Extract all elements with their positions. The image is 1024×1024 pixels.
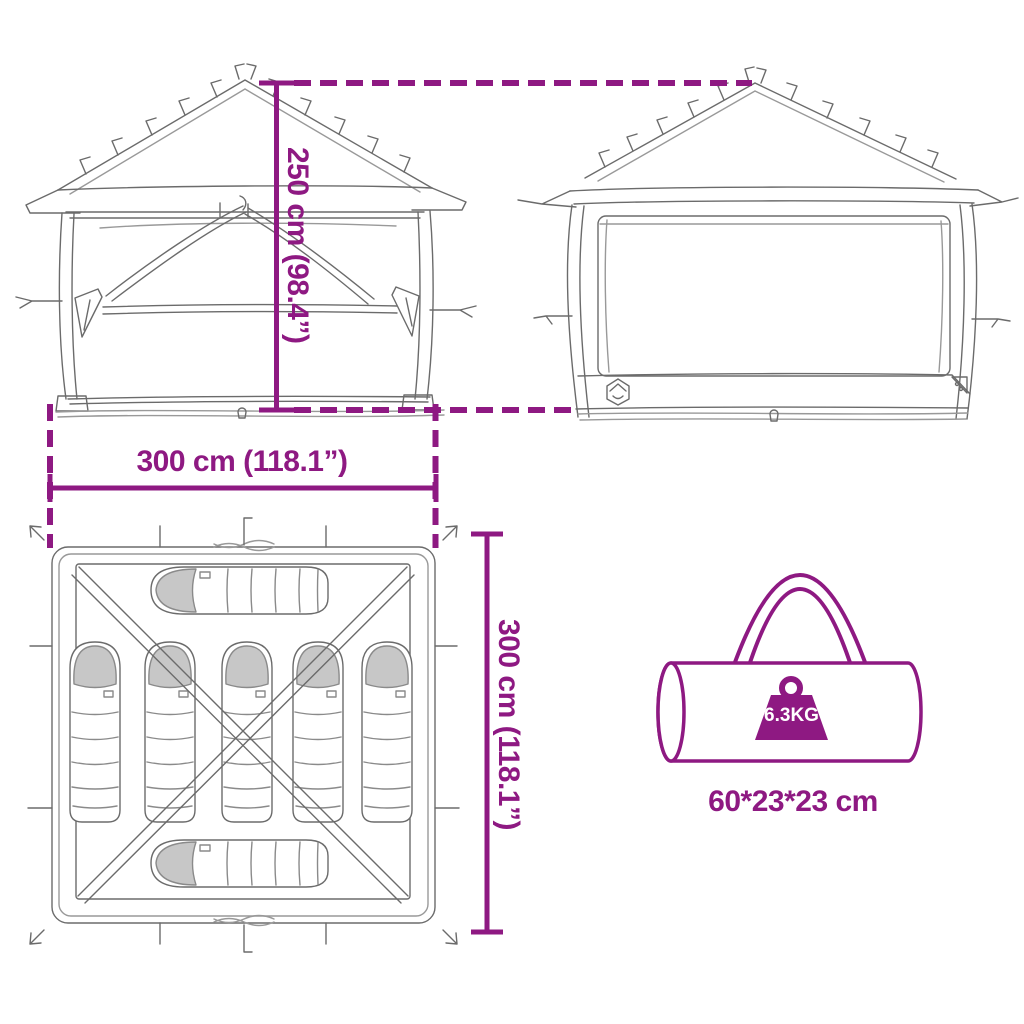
bag-weight-label: 6.3KG <box>756 706 827 725</box>
width-dimension-line <box>50 474 436 502</box>
sleeping-bags <box>70 567 412 887</box>
carry-bag-icon <box>658 575 921 761</box>
hexagon-tent-logo-icon <box>607 379 629 405</box>
tent-top-view <box>28 518 459 952</box>
height-dimension-label: 250 cm (98.4”) <box>282 147 312 343</box>
width-dimension-label: 300 cm (118.1”) <box>90 447 394 477</box>
tent-side-view <box>518 67 1018 421</box>
product-dimension-diagram: 250 cm (98.4”) 300 cm (118.1”) 300 cm (1… <box>0 0 1024 1024</box>
depth-dimension-label: 300 cm (118.1”) <box>493 619 523 830</box>
tent-front-view <box>16 64 476 418</box>
line-art-layer <box>0 0 1024 1024</box>
bag-size-label: 60*23*23 cm <box>670 787 916 817</box>
